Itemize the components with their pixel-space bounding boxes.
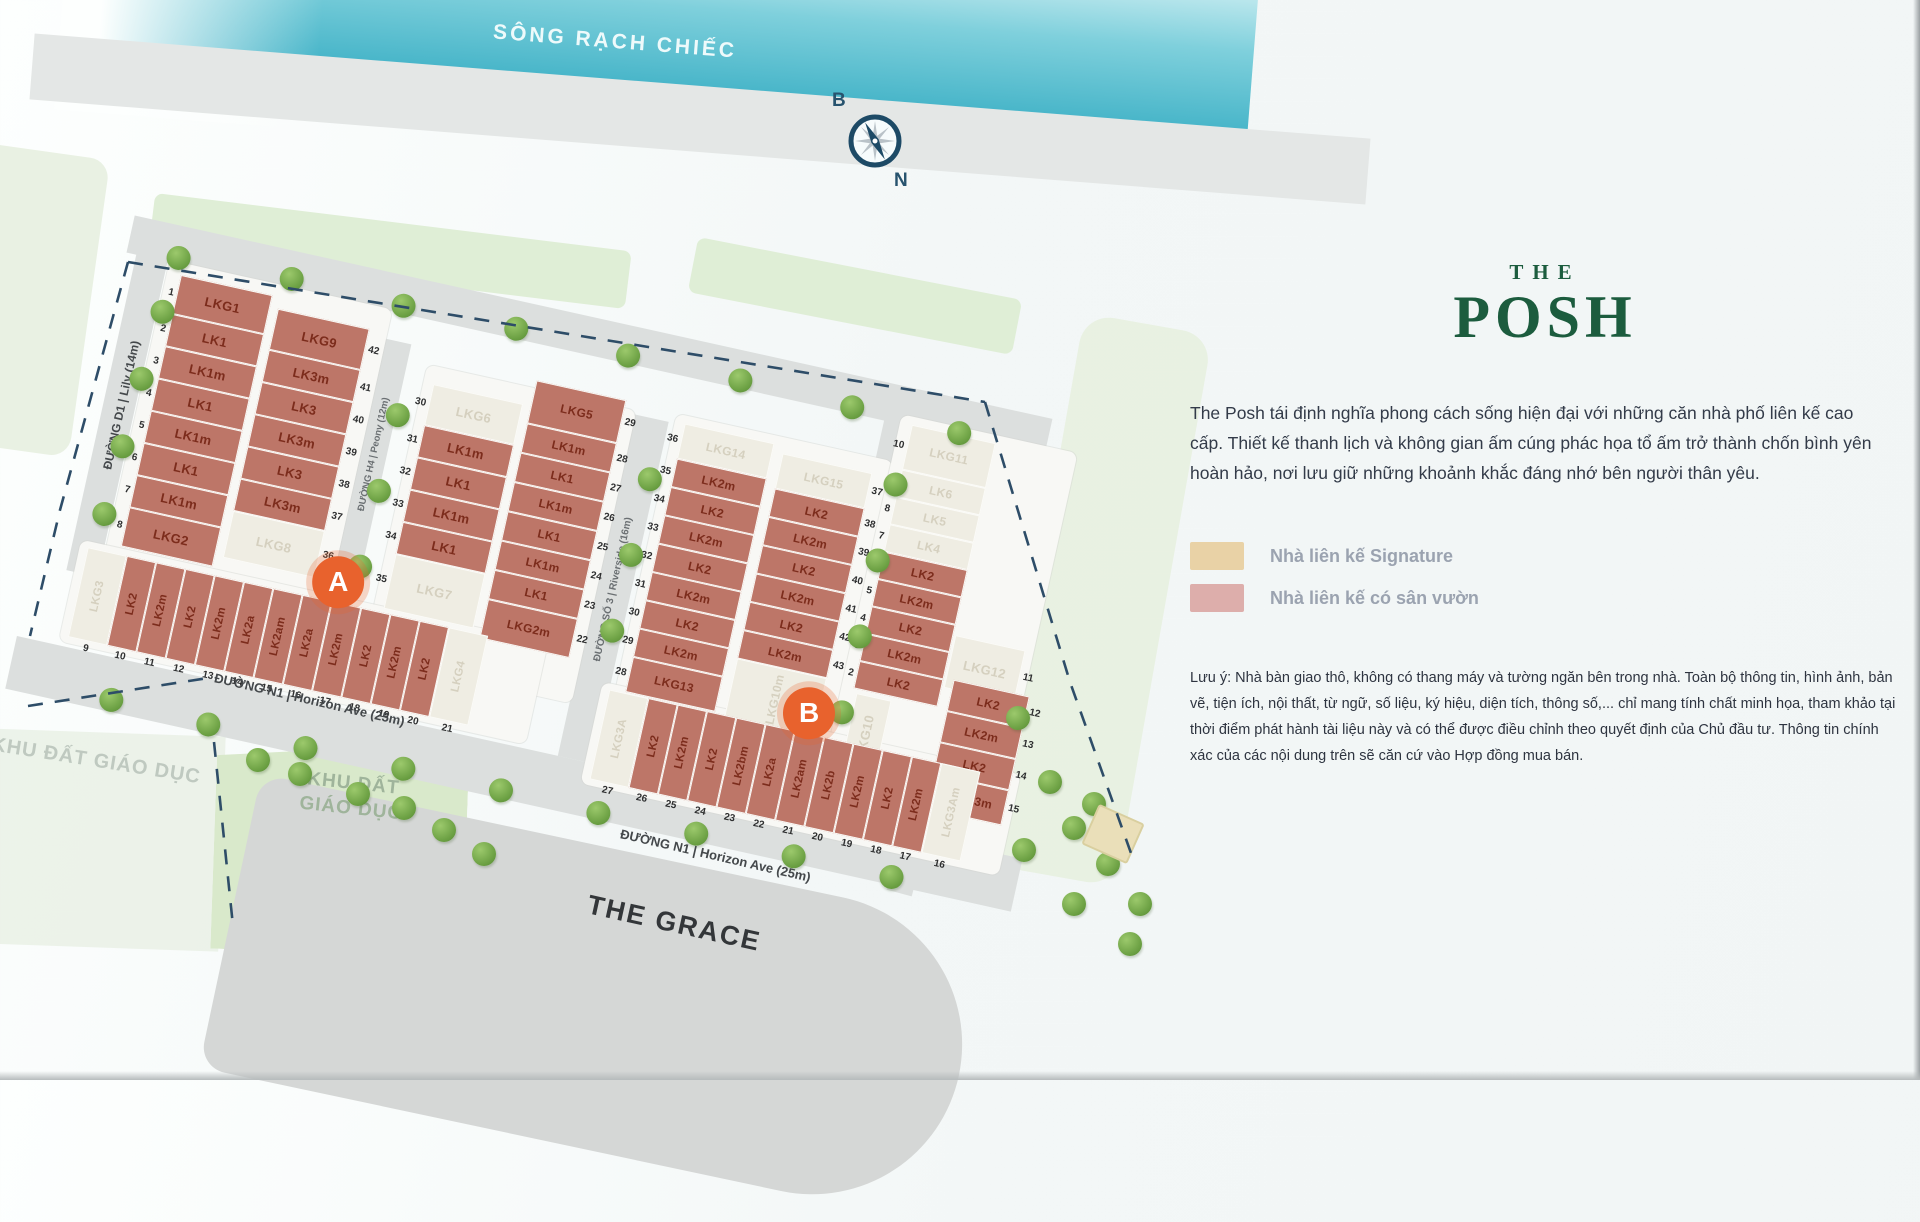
lot-number: 34 bbox=[649, 491, 666, 505]
lot-label: LK2am bbox=[789, 758, 809, 800]
lot-number: 13 bbox=[1021, 738, 1038, 752]
project-description: The Posh tái định nghĩa phong cách sống … bbox=[1190, 398, 1890, 488]
lot-label: LK1m bbox=[188, 361, 228, 384]
lot-label: LK2a bbox=[298, 627, 316, 658]
lot-label: LK1 bbox=[444, 473, 472, 493]
lot-label: LK3m bbox=[291, 365, 331, 388]
lot-label: LK2 bbox=[416, 657, 433, 682]
lot-label: LK5 bbox=[922, 510, 948, 529]
lot-label: LK1 bbox=[549, 468, 575, 487]
lot-label: LK3 bbox=[276, 463, 304, 483]
lot-label: LK3m bbox=[263, 493, 303, 516]
lot-label: LK1 bbox=[430, 538, 458, 558]
tree-icon bbox=[472, 842, 496, 866]
lot-label: LKG5 bbox=[559, 401, 594, 422]
lot-label: LK3 bbox=[290, 398, 318, 418]
lot-label: LK2am bbox=[268, 616, 288, 658]
lot-label: LKG11 bbox=[928, 445, 970, 467]
lot-label: LK2m bbox=[675, 585, 712, 606]
lot-number: 7 bbox=[114, 481, 131, 495]
lot-label: LK2m bbox=[792, 530, 829, 551]
brand-posh: POSH bbox=[1380, 287, 1710, 347]
lot-label: LK1m bbox=[159, 490, 199, 513]
lot-label: LK2 bbox=[898, 620, 924, 639]
lot-number: 34 bbox=[381, 528, 398, 542]
lot-label: LK1 bbox=[523, 585, 549, 604]
lot-label: LKG7 bbox=[415, 580, 453, 602]
lot-label: LK1 bbox=[172, 459, 200, 479]
lot-number: 33 bbox=[388, 496, 405, 510]
lot-number: 31 bbox=[630, 576, 647, 590]
lot-label: LK2 bbox=[645, 734, 662, 759]
tree-icon bbox=[246, 748, 270, 772]
tree-icon bbox=[392, 796, 416, 820]
lot-label: LK1m bbox=[537, 496, 574, 517]
screen-edge bbox=[1913, 0, 1920, 1080]
lot-number: 36 bbox=[662, 431, 679, 445]
lot-label: LK1 bbox=[201, 330, 229, 350]
lot-label: LK2m bbox=[907, 787, 926, 822]
lot-label: LK2m bbox=[151, 593, 170, 628]
tree-icon bbox=[1118, 932, 1142, 956]
legend-label: Nhà liên kế Signature bbox=[1270, 546, 1453, 567]
lot-label: LK2 bbox=[687, 558, 713, 577]
lot-number: 31 bbox=[402, 431, 419, 445]
lot-label: LK1m bbox=[446, 440, 486, 463]
screen-edge bbox=[0, 1071, 1920, 1080]
lot-label: LK2b bbox=[820, 769, 838, 801]
lot-label: LK1 bbox=[536, 526, 562, 545]
legend-swatch bbox=[1190, 542, 1244, 570]
lot-number: 33 bbox=[643, 520, 660, 534]
compass-south-label: N bbox=[894, 170, 908, 192]
lot-label: LKG14 bbox=[705, 440, 747, 462]
lot-label: LK2m bbox=[386, 645, 405, 680]
lot-label: LK2m bbox=[963, 724, 1000, 745]
lot-label: LKG3Am bbox=[940, 786, 963, 838]
lot-label: LK2 bbox=[182, 605, 199, 630]
lot-label: LKG9 bbox=[300, 328, 338, 350]
lot-label: LK2 bbox=[699, 502, 725, 521]
tree-icon bbox=[1128, 892, 1152, 916]
lot-label: LK4 bbox=[916, 538, 942, 557]
lot-label: LK2m bbox=[688, 529, 725, 550]
lot-label: LKG8 bbox=[255, 533, 293, 555]
lot-number: 30 bbox=[624, 605, 641, 619]
tree-icon bbox=[1038, 770, 1062, 794]
legend-label: Nhà liên kế có sân vườn bbox=[1270, 588, 1479, 609]
compass-north-label: B bbox=[832, 90, 846, 112]
brand-the: THE bbox=[1380, 260, 1710, 285]
compass-icon: B N bbox=[846, 112, 904, 170]
legend: Nhà liên kế SignatureNhà liên kế có sân … bbox=[1190, 542, 1790, 626]
masterplan-page: { "river": { "label": "SÔNG RẠCH CHIẾC" … bbox=[0, 0, 1920, 1080]
lot-number: 28 bbox=[610, 665, 627, 679]
brand-logo: THE POSH bbox=[1380, 260, 1710, 347]
tree-icon bbox=[1062, 892, 1086, 916]
lot-label: LKG13 bbox=[653, 673, 695, 695]
lot-label: LKG15 bbox=[802, 470, 844, 492]
lot-label: LK2m bbox=[327, 632, 346, 667]
tree-icon bbox=[1012, 838, 1036, 862]
legend-row: Nhà liên kế có sân vườn bbox=[1190, 584, 1790, 612]
lot-number: 3 bbox=[143, 353, 160, 367]
tree-icon bbox=[288, 762, 312, 786]
lot-label: LK2m bbox=[700, 472, 737, 493]
lot-label: LK2 bbox=[358, 644, 375, 669]
tree-icon bbox=[346, 782, 370, 806]
lot-label: LK2 bbox=[910, 565, 936, 584]
tree-icon bbox=[1062, 816, 1086, 840]
lot-label: LK2m bbox=[849, 774, 868, 809]
lot-label: LKG4 bbox=[449, 660, 468, 694]
lot-label: LK2 bbox=[778, 616, 804, 635]
lot-label: LK2m bbox=[673, 735, 692, 770]
lot-label: LK2bm bbox=[731, 745, 751, 787]
lot-label: LK1 bbox=[186, 395, 214, 415]
lot-label: LK6 bbox=[928, 483, 954, 502]
lot-label: LK2 bbox=[975, 694, 1001, 713]
lot-label: LK2 bbox=[123, 592, 140, 617]
lot-number: 5 bbox=[129, 417, 146, 431]
lot-label: LK2m bbox=[886, 646, 923, 667]
tree-icon bbox=[432, 818, 456, 842]
disclaimer-note: Lưu ý: Nhà bàn giao thô, không có thang … bbox=[1190, 665, 1896, 769]
lot-label: LK2 bbox=[879, 786, 896, 811]
lot-label: LKG1 bbox=[203, 293, 241, 315]
lot-label: LK2a bbox=[240, 614, 258, 645]
lot-label: LK2 bbox=[885, 674, 911, 693]
lot-label: LK2m bbox=[210, 606, 229, 641]
lot-number: 30 bbox=[410, 395, 427, 409]
lot-label: LK1m bbox=[524, 554, 561, 575]
lot-label: LK2m bbox=[767, 644, 804, 665]
lot-label: LK3m bbox=[277, 429, 317, 452]
lot-label: LKG2 bbox=[152, 526, 190, 548]
lot-label: LK2 bbox=[674, 615, 700, 634]
lot-label: LK2m bbox=[663, 642, 700, 663]
lot-label: LK2 bbox=[804, 503, 830, 522]
lot-label: LK2m bbox=[898, 591, 935, 612]
legend-row: Nhà liên kế Signature bbox=[1190, 542, 1790, 570]
lot-label: LKG3 bbox=[88, 580, 107, 614]
lot-label: LK1m bbox=[431, 504, 471, 527]
lot-label: LKG2m bbox=[506, 617, 552, 640]
legend-swatch bbox=[1190, 584, 1244, 612]
lot-number: 12 bbox=[1028, 707, 1045, 721]
lot-number: 1 bbox=[158, 285, 175, 299]
lot-label: LK2 bbox=[703, 747, 720, 772]
lot-label: LK2 bbox=[791, 560, 817, 579]
lot-number: 35 bbox=[371, 572, 388, 586]
lot-label: LKG12 bbox=[962, 657, 1008, 681]
lot-label: LK2a bbox=[761, 757, 779, 788]
lot-label: LK2m bbox=[779, 587, 816, 608]
lot-label: LKG6 bbox=[455, 403, 493, 425]
lot-label: LKG3A bbox=[609, 718, 629, 760]
lot-label: LK1m bbox=[173, 426, 213, 449]
lot-label: LK1m bbox=[550, 437, 587, 458]
lot-number: 32 bbox=[395, 464, 412, 478]
tree-icon bbox=[1006, 706, 1030, 730]
